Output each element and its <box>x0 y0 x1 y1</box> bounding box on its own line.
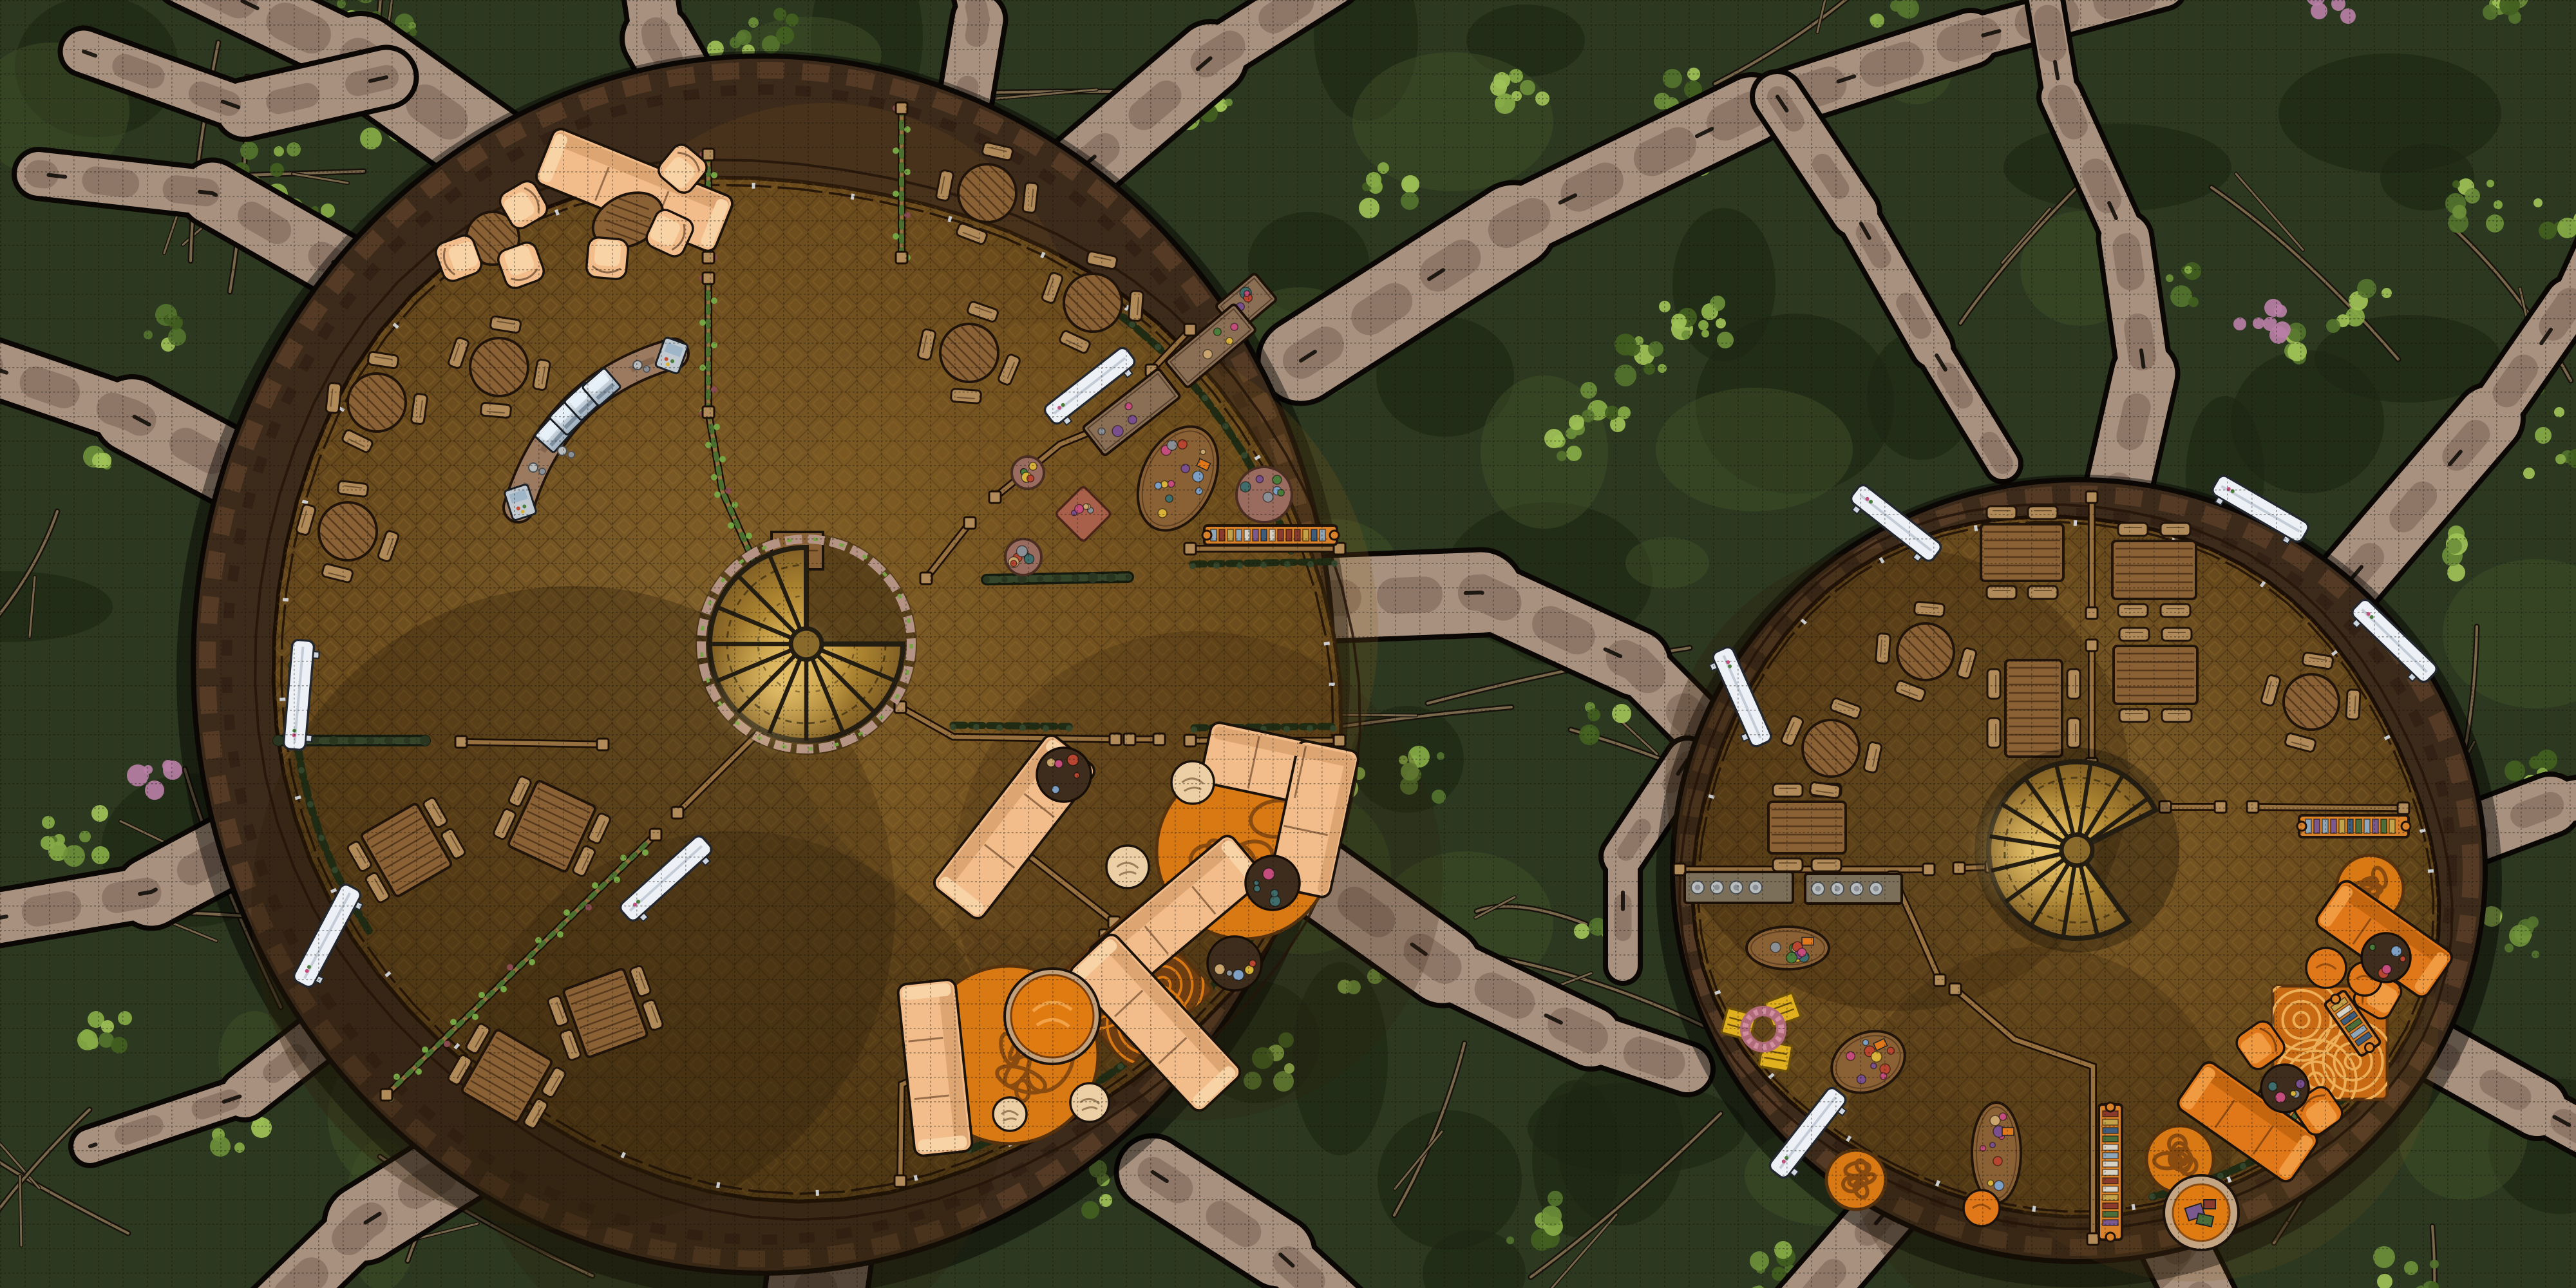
treehouse-tavern-battle-map <box>0 0 2576 1288</box>
grid-overlay <box>0 0 2576 1288</box>
